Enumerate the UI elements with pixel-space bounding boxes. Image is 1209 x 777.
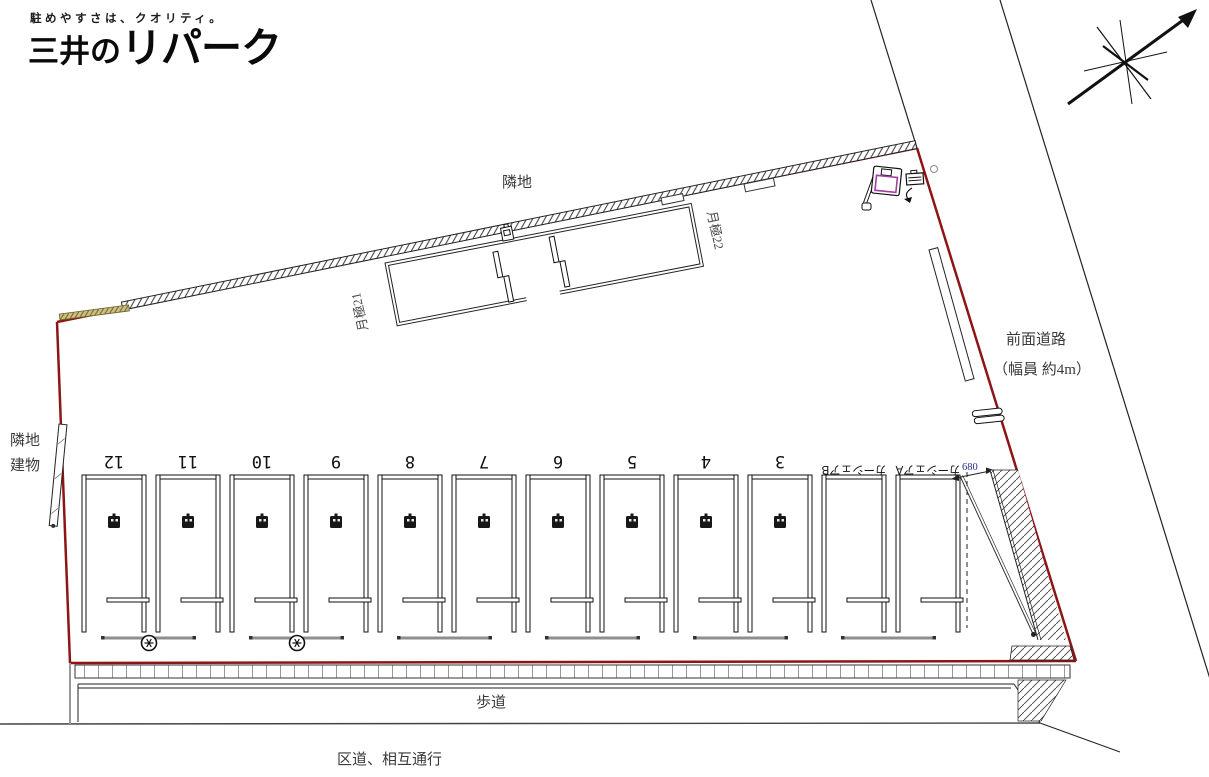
east-slope-hatch [990, 470, 1066, 640]
front-road-label: 前面道路 [1006, 331, 1066, 348]
wheel-stop-bar [693, 636, 788, 640]
stall-10 [230, 475, 297, 632]
west-fence-khaki-wall [59, 305, 129, 320]
flap-lock-icon [552, 514, 564, 529]
manhole-icon [142, 636, 157, 651]
boundary-south [70, 661, 1076, 663]
site-boundary [57, 148, 1076, 663]
stall-number-5: 5 [627, 451, 637, 471]
flap-lock-icon [700, 514, 712, 529]
stall-label-carshare-b: カーシェアB [821, 463, 886, 476]
bollard-icon [972, 408, 1004, 424]
curb-strip [75, 665, 1070, 678]
stall-carshare-a [896, 475, 963, 632]
wheel-stop [504, 276, 514, 302]
monthly-parking-area [382, 189, 704, 328]
stall-5 [600, 475, 667, 632]
stall-12 [82, 475, 149, 632]
wheel-stop-bar [397, 636, 492, 640]
entrance-sign-icon [862, 166, 902, 210]
stall-row: 12 11 10 9 8 7 6 5 4 3 カーシェアB カーシェアA [82, 451, 963, 651]
wheel-stop-bar [545, 636, 640, 640]
manhole-icon [290, 636, 305, 651]
stall-label-carshare-a: カーシェアA [895, 463, 960, 476]
stall-number-9: 9 [331, 451, 341, 471]
front-road-width-label: （幅員 約4m） [993, 361, 1091, 378]
stall-4 [674, 475, 741, 632]
sidewalk-corner-hatch [1018, 680, 1066, 721]
stall-number-3: 3 [775, 451, 785, 471]
site-plan-drawing: 月極21 月極22 [0, 0, 1209, 777]
road-edge-line [0, 723, 1040, 724]
adjacent-land-top-label: 隣地 [502, 174, 532, 191]
monthly-entrance-gap [525, 287, 560, 302]
wheel-stop-bar [841, 636, 936, 640]
stall-carshare-b [822, 475, 889, 632]
north-compass-icon [1068, 9, 1197, 104]
stall-8 [378, 475, 445, 632]
stall-3 [748, 475, 815, 632]
stall-9 [304, 475, 371, 632]
wheel-stop [493, 251, 503, 277]
stall-7 [452, 475, 519, 632]
flap-lock-icon [626, 514, 638, 529]
stall-number-4: 4 [701, 451, 711, 471]
flap-lock-icon [182, 514, 194, 529]
wheel-stop [549, 236, 559, 262]
utility-mark [931, 166, 938, 173]
stall-6 [526, 475, 593, 632]
boundary-east [917, 148, 1076, 661]
flap-lock-icon [478, 514, 490, 529]
sidewalk-band [0, 680, 1120, 752]
road-near-edge-upper [871, 0, 917, 148]
wheel-stop [560, 261, 570, 287]
flap-lock-icon [774, 514, 786, 529]
stall-number-6: 6 [553, 451, 563, 471]
flap-lock-icon [404, 514, 416, 529]
stall-number-12: 12 [104, 451, 124, 471]
flap-lock-icon [256, 514, 268, 529]
corner-step-hatch [1010, 646, 1074, 660]
flap-lock-icon [108, 514, 120, 529]
parking-site-plan: 駐めやすさは、クオリティ。 三井のリパーク [0, 0, 1209, 777]
road-edge-continuation [1040, 723, 1120, 752]
stall-number-10: 10 [252, 451, 272, 471]
monthly-22-label: 月極22 [704, 210, 727, 251]
adjacent-left-label-2: 建物 [10, 457, 40, 474]
adjacent-left-label-1: 隣地 [10, 432, 40, 449]
north-fence [121, 141, 916, 310]
ward-road-label: 区道、相互通行 [337, 751, 442, 768]
sidewalk-label: 歩道 [476, 694, 506, 711]
dimension-680-text: 680 [962, 462, 978, 473]
stall-11 [156, 475, 223, 632]
monthly-21-label: 月極21 [348, 291, 371, 332]
stall-number-11: 11 [178, 451, 198, 471]
flap-lock-icon [330, 514, 342, 529]
stall-number-8: 8 [405, 451, 415, 471]
stall-number-7: 7 [479, 451, 489, 471]
